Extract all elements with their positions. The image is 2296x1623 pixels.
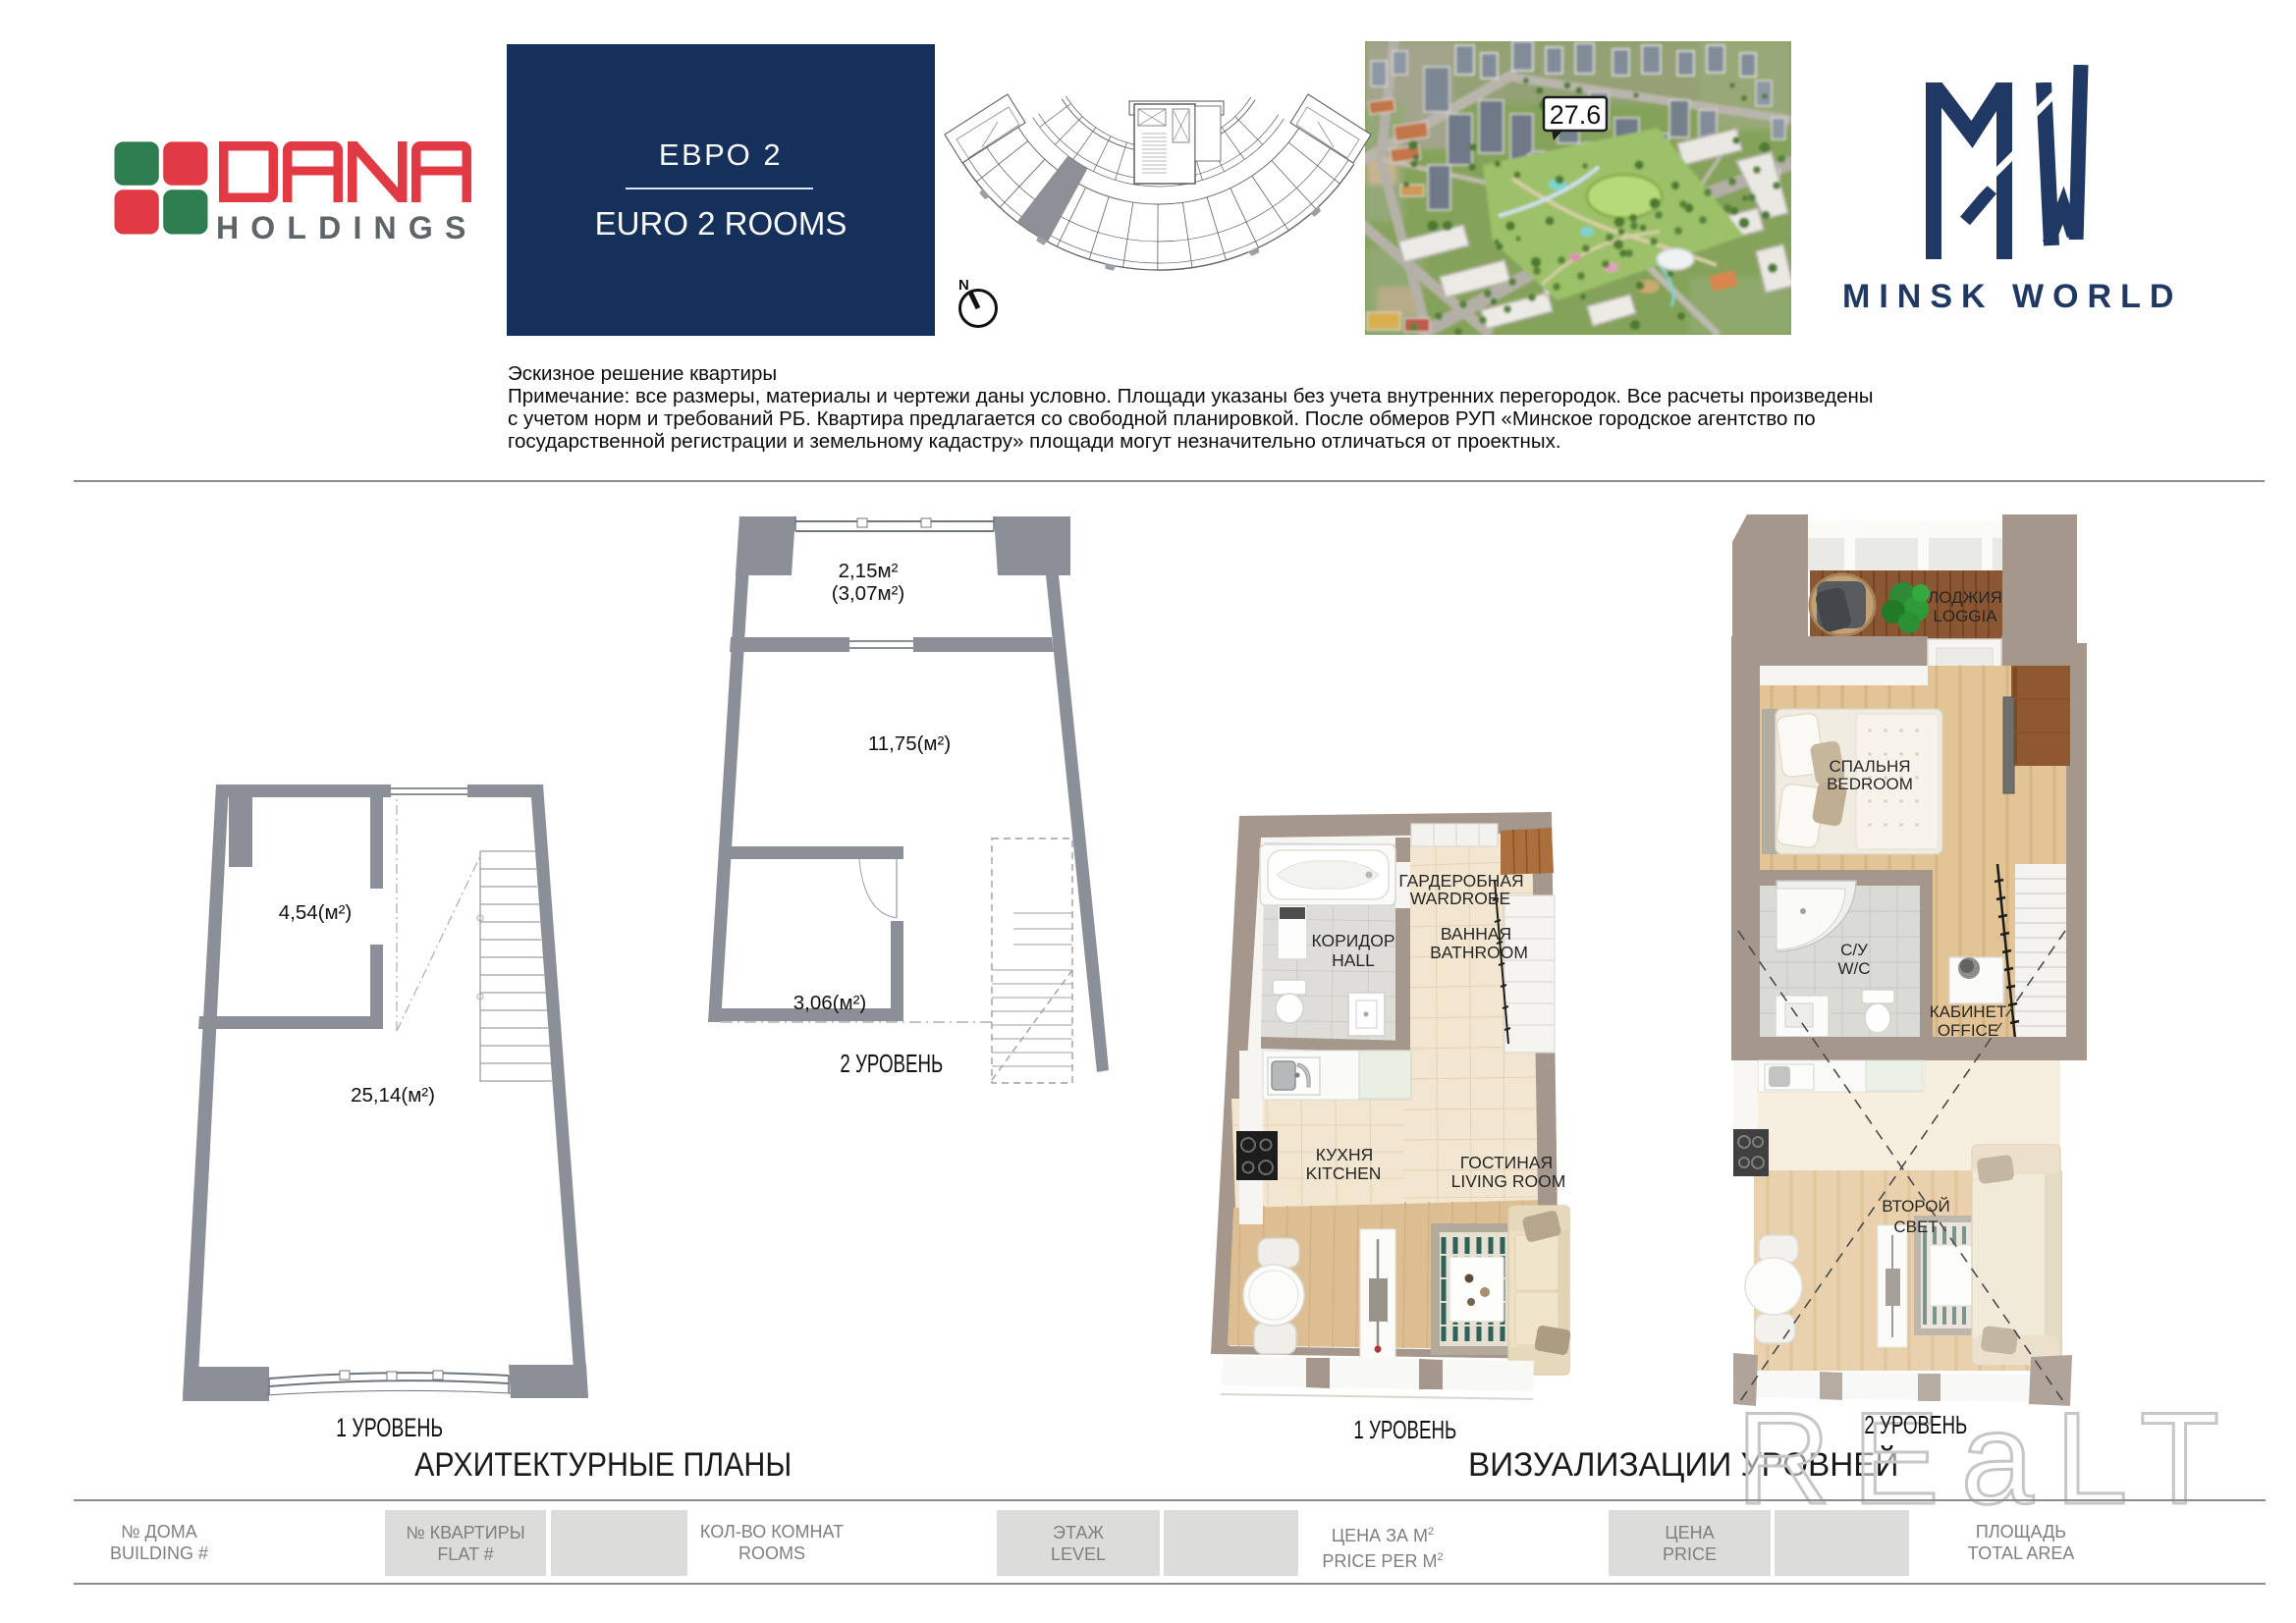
svg-text:КУХНЯ: КУХНЯ: [1316, 1145, 1373, 1164]
svg-text:КОРИДОР: КОРИДОР: [1312, 931, 1395, 950]
svg-text:11,75(м²): 11,75(м²): [868, 732, 951, 755]
svg-text:4,54(м²): 4,54(м²): [279, 901, 352, 924]
svg-text:27.6: 27.6: [1550, 100, 1602, 130]
svg-text:ГОСТИНАЯ: ГОСТИНАЯ: [1460, 1153, 1553, 1172]
svg-text:BEDROOM: BEDROOM: [1827, 775, 1913, 793]
svg-text:BATHROOM: BATHROOM: [1430, 943, 1528, 962]
svg-text:СПАЛЬНЯ: СПАЛЬНЯ: [1829, 757, 1910, 776]
svg-text:СВЕТ: СВЕТ: [1893, 1217, 1938, 1236]
svg-text:KITCHEN: KITCHEN: [1306, 1163, 1382, 1183]
svg-text:WARDROBE: WARDROBE: [1410, 889, 1510, 908]
svg-text:25,14(м²): 25,14(м²): [351, 1084, 435, 1107]
svg-text:MINSK WORLD: MINSK WORLD: [1842, 278, 2182, 315]
svg-text:W/C: W/C: [1837, 959, 1870, 978]
svg-text:ЛОДЖИЯ: ЛОДЖИЯ: [1928, 588, 2002, 607]
svg-text:(3,07м²): (3,07м²): [832, 582, 904, 605]
svg-text:ВТОРОЙ: ВТОРОЙ: [1882, 1197, 1949, 1216]
svg-text:HALL: HALL: [1332, 950, 1375, 970]
svg-text:3,06(м²): 3,06(м²): [793, 992, 866, 1014]
svg-text:2,15м²: 2,15м²: [839, 560, 899, 582]
svg-text:ВАННАЯ: ВАННАЯ: [1441, 924, 1511, 944]
svg-text:LIVING ROOM: LIVING ROOM: [1451, 1171, 1566, 1191]
svg-text:N: N: [958, 277, 969, 294]
svg-text:LOGGIA: LOGGIA: [1933, 607, 1997, 625]
svg-text:С/У: С/У: [1840, 941, 1868, 959]
svg-text:КАБИНЕТ: КАБИНЕТ: [1930, 1002, 2007, 1021]
svg-text:ГАРДЕРОБНАЯ: ГАРДЕРОБНАЯ: [1398, 871, 1523, 891]
svg-text:HOLDINGS: HOLDINGS: [216, 210, 478, 245]
